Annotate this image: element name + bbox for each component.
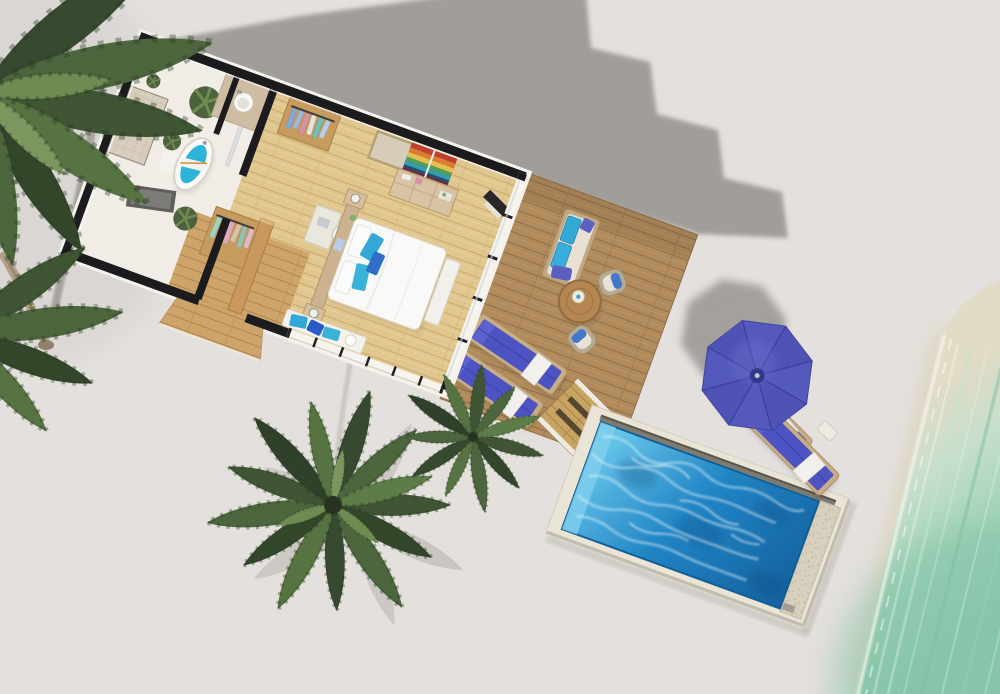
villa-aerial-render (0, 0, 1000, 694)
scene-root (0, 0, 1000, 694)
grain-overlay (0, 0, 1000, 694)
